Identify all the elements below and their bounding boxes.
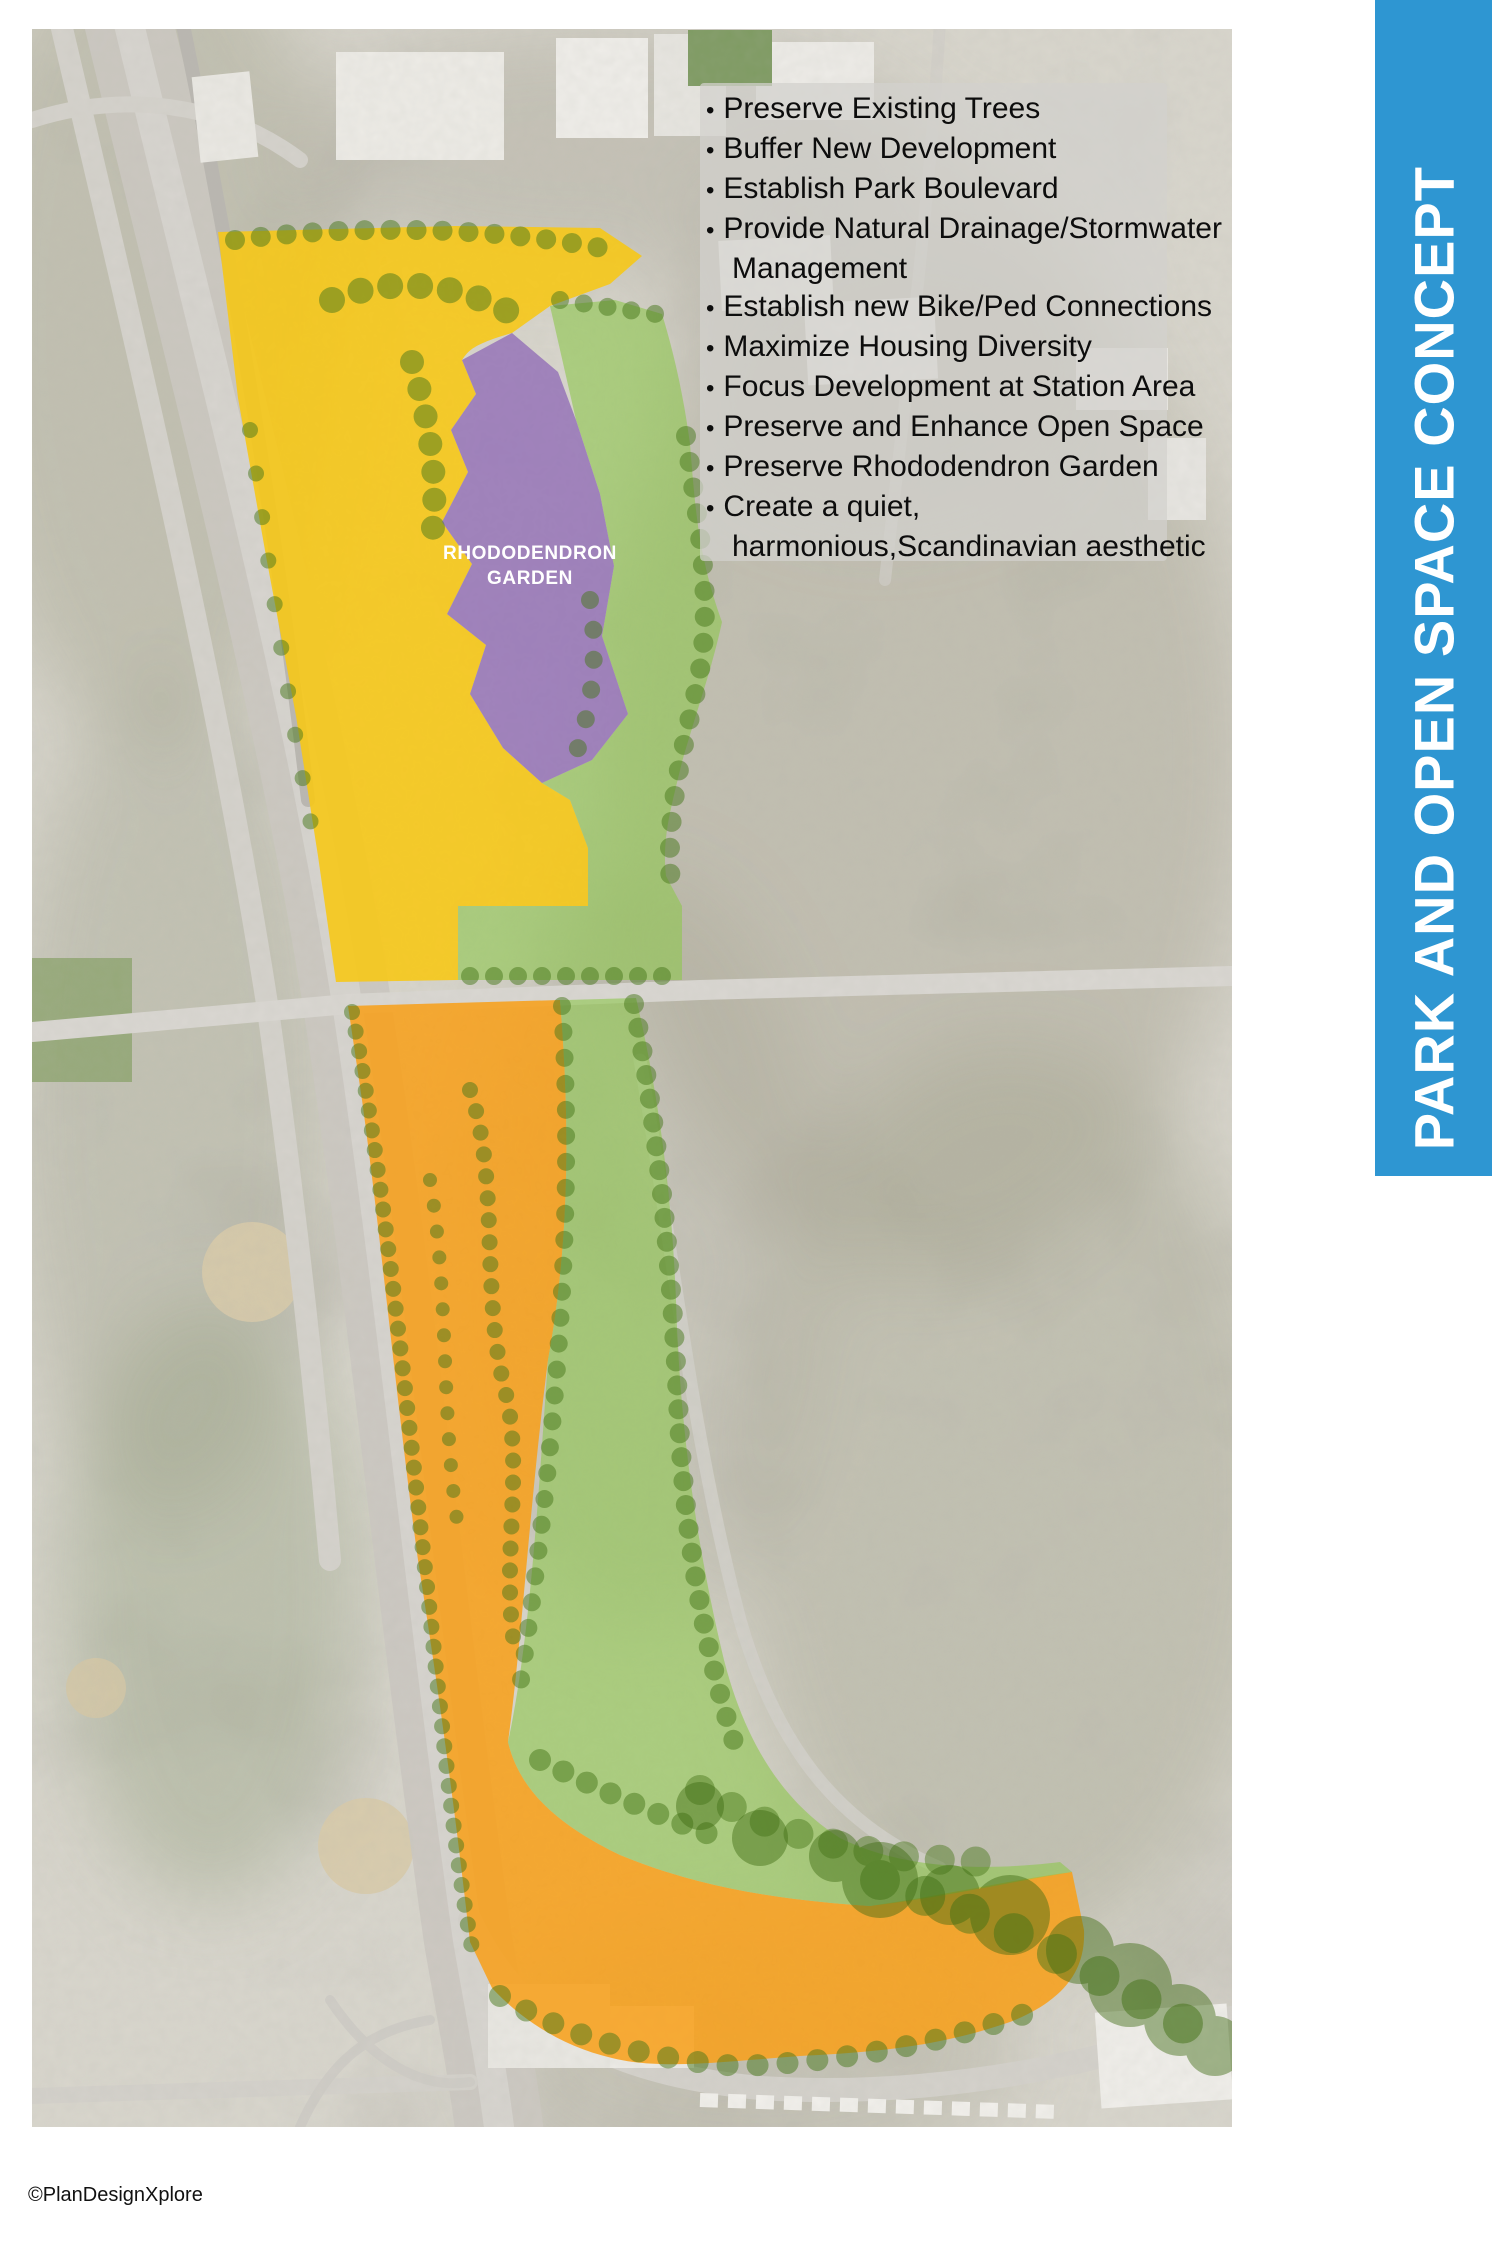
principle-item: Create a quiet, harmonious,Scandinavian … (706, 488, 1272, 566)
principle-item: Preserve and Enhance Open Space (706, 408, 1272, 448)
principle-item: Focus Development at Station Area (706, 368, 1272, 408)
page-title: PARK AND OPEN SPACE CONCEPT (1401, 166, 1466, 1150)
garden-label-line2: GARDEN (440, 566, 620, 591)
title-banner: PARK AND OPEN SPACE CONCEPT (1375, 0, 1492, 1176)
principle-item: Maximize Housing Diversity (706, 328, 1272, 368)
concept-plan-page: Preserve Existing Trees Buffer New Devel… (0, 0, 1500, 2250)
rhododendron-garden-label: RHODODENDRON GARDEN (440, 541, 620, 591)
principle-item: Preserve Existing Trees (706, 90, 1272, 130)
principle-item: Preserve Rhododendron Garden (706, 448, 1272, 488)
principles-list: Preserve Existing Trees Buffer New Devel… (706, 90, 1272, 566)
principle-item: Establish Park Boulevard (706, 170, 1272, 210)
principle-item: Establish new Bike/Ped Connections (706, 288, 1272, 328)
principle-item: Provide Natural Drainage/Stormwater Mana… (706, 210, 1272, 288)
garden-label-line1: RHODODENDRON (440, 541, 620, 566)
copyright-credit: ©PlanDesignXplore (28, 2184, 203, 2207)
principle-item: Buffer New Development (706, 130, 1272, 170)
